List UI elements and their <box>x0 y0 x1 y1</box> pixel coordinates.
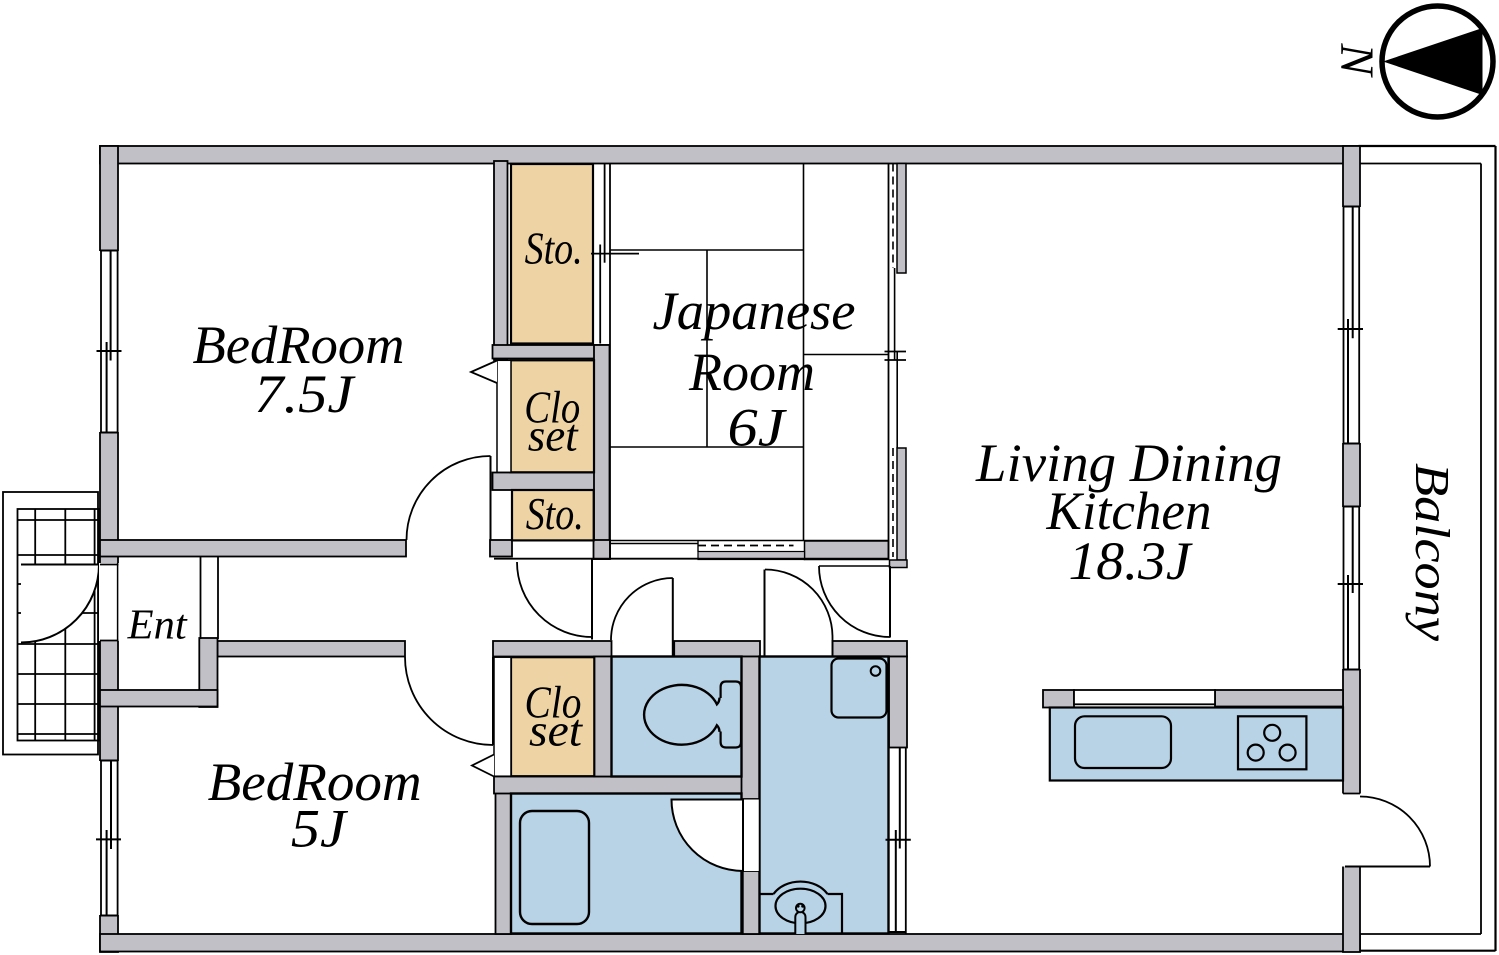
svg-text:Room: Room <box>688 342 815 402</box>
svg-text:Sto.: Sto. <box>526 488 584 539</box>
svg-text:Japanese: Japanese <box>653 281 856 341</box>
svg-text:N: N <box>1330 42 1383 78</box>
svg-text:Ent: Ent <box>127 602 188 648</box>
svg-text:set: set <box>529 706 584 756</box>
svg-text:6J: 6J <box>728 398 788 458</box>
svg-text:18.3J: 18.3J <box>1069 531 1194 591</box>
svg-text:set: set <box>528 411 579 461</box>
svg-text:Balcony: Balcony <box>1405 463 1460 641</box>
svg-text:Sto.: Sto. <box>525 223 583 274</box>
svg-text:5J: 5J <box>291 799 349 859</box>
svg-text:7.5J: 7.5J <box>254 364 356 424</box>
